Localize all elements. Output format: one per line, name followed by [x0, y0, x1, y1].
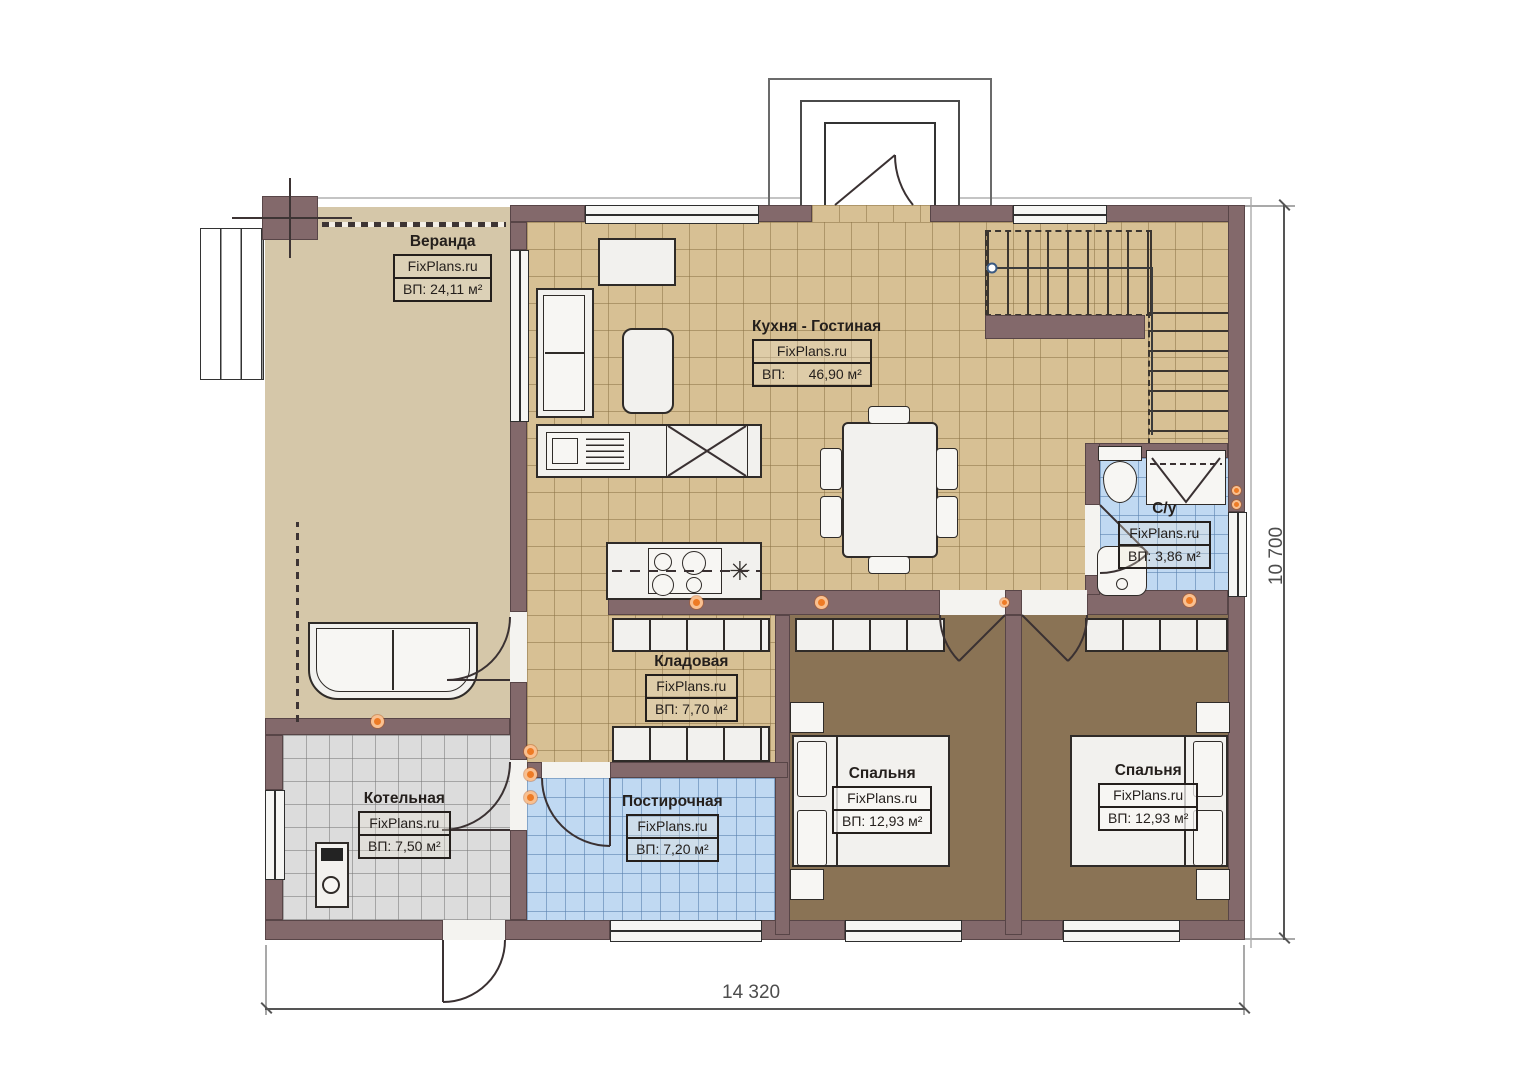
socket-icon — [1183, 594, 1196, 607]
stove-burner-1 — [654, 553, 672, 571]
room-name: Спальня — [1115, 762, 1182, 780]
socket-icon — [1000, 598, 1009, 607]
door-gap-bedroom1 — [940, 590, 1005, 615]
room-label-veranda: Веранда FixPlans.ru ВП: 24,11 м² — [393, 233, 492, 302]
bedroom1-wardrobe — [795, 618, 945, 652]
fridge-snowflake-icon: ✳ — [729, 558, 751, 584]
room-label-kitchen-living: Кухня - Гостиная FixPlans.ru ВП: 46,90 м… — [752, 318, 881, 387]
hall-opening-floor — [527, 590, 608, 615]
bedroom1-nightstand-bottom — [790, 869, 824, 900]
room-info-box: FixPlans.ru ВП: 3,86 м² — [1118, 521, 1211, 569]
wall-top-a — [510, 205, 585, 222]
room-info-box: FixPlans.ru ВП: 24,11 м² — [393, 254, 492, 302]
window-kitchen-top — [585, 205, 759, 224]
wall-boiler-left-a — [265, 735, 283, 790]
brand-watermark: FixPlans.ru — [834, 788, 930, 809]
brand-watermark: FixPlans.ru — [360, 813, 449, 834]
boiler-dial — [322, 876, 340, 894]
stairs-upper-flight — [985, 230, 1152, 316]
socket-icon — [690, 596, 703, 609]
veranda-sofa-divider — [392, 630, 394, 690]
room-area: ВП: 7,70 м² — [647, 697, 736, 720]
room-area: ВП: 7,20 м² — [628, 837, 717, 860]
veranda-left-dashed-edge — [296, 522, 299, 722]
room-label-bedroom2: Спальня FixPlans.ru ВП: 12,93 м² — [1098, 762, 1198, 831]
dining-table — [842, 422, 938, 558]
storage-closet-top — [612, 618, 770, 652]
dim-line-width — [265, 1008, 1245, 1010]
bathroom-sink-drain — [1116, 578, 1128, 590]
room-name: Постирочная — [622, 793, 723, 811]
stove-burner-4 — [686, 577, 702, 593]
window-stairs-top — [1013, 205, 1107, 224]
door-gap-laundry — [542, 762, 610, 778]
kitchen-sink-bowl — [552, 438, 578, 464]
door-gap-bedroom2 — [1022, 590, 1087, 615]
room-name: Спальня — [849, 765, 916, 783]
door-gap-boiler-exterior — [443, 920, 505, 940]
socket-icon — [1232, 500, 1241, 509]
floor-plan: ✳ — [0, 0, 1528, 1080]
brand-watermark: FixPlans.ru — [628, 816, 717, 837]
room-area: ВП: 12,93 м² — [834, 809, 930, 832]
post-cross-v — [289, 178, 291, 258]
bedroom2-wardrobe — [1085, 618, 1228, 652]
room-label-laundry: Постирочная FixPlans.ru ВП: 7,20 м² — [622, 793, 723, 862]
window-bedroom2-bottom — [1063, 920, 1180, 942]
wall-laundry-top-b — [610, 762, 788, 778]
stove-burner-3 — [652, 574, 674, 596]
brand-watermark: FixPlans.ru — [1100, 785, 1196, 806]
console-table — [598, 238, 676, 286]
wall-right-bottom — [1228, 595, 1245, 940]
room-label-bathroom: С/у FixPlans.ru ВП: 3,86 м² — [1118, 500, 1211, 569]
socket-icon — [524, 791, 537, 804]
wall-bottom-a — [265, 920, 443, 940]
socket-icon — [524, 745, 537, 758]
dining-chair-right-1 — [936, 448, 958, 490]
window-laundry-bottom — [610, 920, 762, 942]
wall-bottom-e — [1178, 920, 1245, 940]
stairs-wall-stub — [985, 315, 1145, 339]
armchair — [622, 328, 674, 414]
wall-kitchen-west-a — [510, 222, 527, 250]
boiler-panel — [321, 848, 343, 861]
boiler-exterior-door-arc — [443, 940, 505, 1002]
bedroom2-nightstand-bottom — [1196, 869, 1230, 900]
stove-burner-2 — [682, 551, 706, 575]
wall-bottom-b — [505, 920, 610, 940]
bedroom2-nightstand-top — [1196, 702, 1230, 733]
brand-watermark: FixPlans.ru — [395, 256, 490, 277]
shower-tray — [1146, 450, 1226, 505]
kitchen-appliance-unit — [666, 424, 748, 478]
porch-inner-step — [824, 122, 936, 207]
wall-top-c — [930, 205, 1013, 222]
bedroom1-pillow-1 — [797, 741, 827, 797]
storage-closet-bottom — [612, 726, 770, 762]
wall-top-d — [1105, 205, 1245, 222]
kitchen-sink-drainer — [586, 438, 624, 464]
brand-watermark: FixPlans.ru — [754, 341, 870, 362]
wall-top-b — [757, 205, 812, 222]
wall-bottom-c — [760, 920, 845, 940]
veranda-side-steps — [200, 228, 264, 380]
wall-kitchen-west-b — [510, 420, 527, 612]
dining-chair-bottom — [868, 556, 910, 574]
window-veranda-kitchen — [510, 250, 529, 422]
stairs-lower-flight — [1148, 312, 1232, 454]
dining-chair-left-1 — [820, 448, 842, 490]
bedroom1-nightstand-top — [790, 702, 824, 733]
dim-height-label: 10 700 — [1266, 527, 1288, 585]
dining-chair-top — [868, 406, 910, 424]
living-sofa-divider — [545, 352, 585, 354]
room-area: ВП: 3,86 м² — [1120, 544, 1209, 567]
room-area: ВП: 24,11 м² — [395, 277, 490, 300]
room-area: ВП: 46,90 м² — [754, 362, 870, 385]
room-name: Веранда — [410, 233, 476, 251]
brand-watermark: FixPlans.ru — [1120, 523, 1209, 544]
room-name: Котельная — [364, 790, 445, 808]
post-cross-h — [232, 217, 352, 219]
roof-edge-right — [1250, 197, 1252, 948]
dim-width-label: 14 320 — [722, 982, 780, 1004]
bedroom1-pillow-2 — [797, 810, 827, 866]
room-info-box: FixPlans.ru ВП: 46,90 м² — [752, 339, 872, 387]
window-boiler-left — [265, 790, 285, 880]
wall-boiler-laundry-a — [510, 830, 527, 920]
room-info-box: FixPlans.ru ВП: 7,20 м² — [626, 814, 719, 862]
window-bathroom-right — [1228, 512, 1247, 597]
room-info-box: FixPlans.ru ВП: 12,93 м² — [832, 786, 932, 834]
veranda-top-dashed-edge — [322, 222, 506, 227]
socket-icon — [524, 768, 537, 781]
wall-veranda-bottom — [265, 718, 510, 735]
room-info-box: FixPlans.ru ВП: 7,70 м² — [645, 674, 738, 722]
room-info-box: FixPlans.ru ВП: 12,93 м² — [1098, 783, 1198, 831]
wall-bedroom-divider — [1005, 615, 1022, 935]
socket-icon — [1232, 486, 1241, 495]
room-name: Кухня - Гостиная — [752, 318, 881, 336]
entry-floor-strip — [812, 205, 930, 222]
socket-icon — [371, 715, 384, 728]
dining-chair-right-2 — [936, 496, 958, 538]
brand-watermark: FixPlans.ru — [647, 676, 736, 697]
wall-right-top — [1228, 205, 1245, 512]
window-bedroom1-bottom — [845, 920, 962, 942]
room-area: ВП: 7,50 м² — [360, 834, 449, 857]
room-label-boiler: Котельная FixPlans.ru ВП: 7,50 м² — [358, 790, 451, 859]
room-name: С/у — [1152, 500, 1176, 518]
room-label-storage: Кладовая FixPlans.ru ВП: 7,70 м² — [645, 653, 738, 722]
dining-chair-left-2 — [820, 496, 842, 538]
toilet-tank — [1098, 446, 1142, 461]
room-name: Кладовая — [654, 653, 728, 671]
roof-edge-top — [265, 197, 1250, 199]
room-area: ВП: 12,93 м² — [1100, 806, 1196, 829]
room-label-bedroom1: Спальня FixPlans.ru ВП: 12,93 м² — [832, 765, 932, 834]
wall-boiler-left-b — [265, 878, 283, 920]
room-info-box: FixPlans.ru ВП: 7,50 м² — [358, 811, 451, 859]
socket-icon — [815, 596, 828, 609]
door-gap-veranda — [510, 612, 527, 682]
